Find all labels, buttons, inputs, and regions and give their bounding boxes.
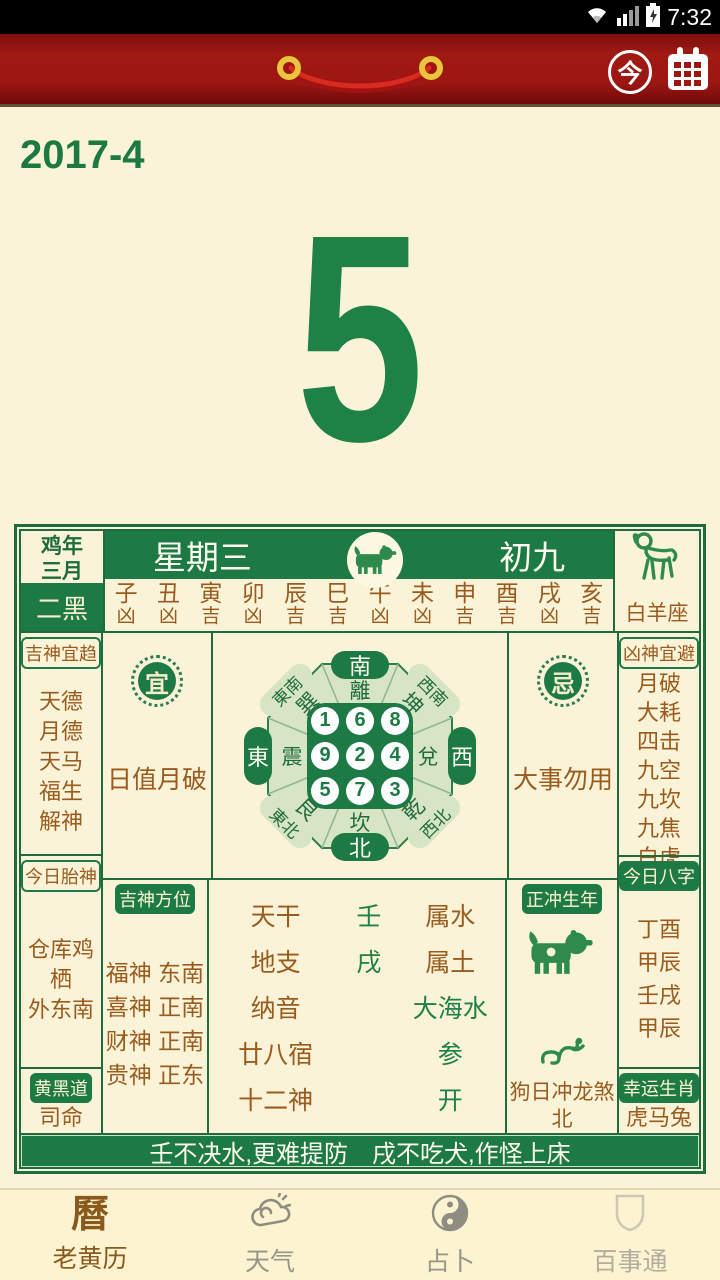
suitable-seal-icon: 宜 xyxy=(131,655,183,707)
branch-name: 辰 xyxy=(274,581,316,605)
weekday-label: 星期三 xyxy=(153,531,252,579)
lucky-zodiac-cell: 幸运生肖 虎马兔 xyxy=(619,1067,699,1133)
lunar-day-label: 初九 xyxy=(499,531,565,579)
lucky-directions-list: 福神 东南 喜神 正南 财神 正南 贵神 正东 xyxy=(106,914,204,1133)
nav-item-almanac[interactable]: 曆 老黄历 xyxy=(0,1190,180,1280)
branch-name: 寅 xyxy=(190,581,232,605)
fetal-god-cell: 今日胎神 仓库鸡栖 外东南 xyxy=(21,854,101,1067)
direction-north: 北 xyxy=(331,833,389,861)
bad-gods-cell: 凶神宜避 月破 大耗 四击 九空 九坎 九焦 白虎 xyxy=(619,633,699,855)
nav-label-divination: 占卜 xyxy=(425,1242,475,1278)
lucky-directions-badge: 吉神方位 xyxy=(115,884,195,914)
gz-attr: 属土 xyxy=(395,943,505,979)
gz-value: 戌 xyxy=(342,943,395,979)
branch-name: 戌 xyxy=(528,581,570,605)
good-gods-list: 天德 月德 天马 福生 解神 xyxy=(39,669,83,854)
gz-label: 廿八宿 xyxy=(209,1035,342,1071)
direction-east: 東 xyxy=(244,727,272,785)
flying-star: 二黑 xyxy=(21,583,103,631)
calendar-button[interactable] xyxy=(666,46,710,97)
star-number: 9 xyxy=(311,742,339,770)
lucky-zodiac-badge: 幸运生肖 xyxy=(619,1073,699,1103)
app-header: 今 xyxy=(0,34,720,107)
zodiac-sign-cell: 白羊座 xyxy=(613,531,699,631)
lucky-zodiac-text: 虎马兔 xyxy=(626,1103,692,1133)
nine-palace-compass: 離 坎 震 兌 巽 坤 艮 乾 1 6 8 9 2 xyxy=(245,653,475,859)
hourly-luck-row: 子凶 丑凶 寅吉 卯凶 辰吉 巳吉 午凶 未凶 申吉 酉吉 戌凶 亥吉 xyxy=(105,579,613,631)
rope-handle-icon xyxy=(275,56,445,103)
nav-item-weather[interactable]: 天气 xyxy=(180,1190,360,1280)
star-number: 4 xyxy=(381,742,409,770)
year-month-label: 2017-4 xyxy=(20,133,720,178)
branch-name: 未 xyxy=(401,581,443,605)
branch-name: 巳 xyxy=(317,581,359,605)
suitable-cell: 宜 日值月破 xyxy=(103,633,213,878)
gz-label: 地支 xyxy=(209,943,342,979)
trigram-dui: 兌 xyxy=(418,741,439,771)
fetal-god-badge: 今日胎神 xyxy=(21,860,101,892)
gz-label: 十二神 xyxy=(209,1081,342,1117)
yinyang-icon xyxy=(430,1193,470,1238)
daily-saying-bar: 壬不决水,更难提防 戌不吃犬,作怪上床 xyxy=(21,1133,699,1167)
branch-luck: 凶 xyxy=(359,605,401,629)
clash-badge: 正冲生年 xyxy=(522,884,602,914)
branch-name: 亥 xyxy=(571,581,613,605)
suitable-seal-char: 宜 xyxy=(138,662,176,700)
fetal-god-text: 仓库鸡栖 外东南 xyxy=(21,892,101,1067)
gz-label: 天干 xyxy=(209,897,342,933)
gz-attr: 参 xyxy=(395,1035,505,1071)
branch-luck: 吉 xyxy=(274,605,316,629)
shield-icon xyxy=(610,1193,650,1238)
status-time: 7:32 xyxy=(667,4,712,31)
star-number: 8 xyxy=(381,707,409,735)
today-button-label: 今 xyxy=(617,54,642,90)
ganzhi-table: 天干壬属水 地支戌属土 纳音大海水 廿八宿参 十二神开 xyxy=(209,880,505,1133)
today-button[interactable]: 今 xyxy=(608,50,652,94)
bazi-cell: 今日八字 丁酉 甲辰 壬戌 甲辰 xyxy=(619,855,699,1067)
branch-luck: 吉 xyxy=(486,605,528,629)
almanac-card[interactable]: 鸡年 三月 二黑 星期三 xyxy=(14,524,706,1174)
branch-luck: 吉 xyxy=(190,605,232,629)
branch-luck: 吉 xyxy=(444,605,486,629)
branch-luck: 吉 xyxy=(317,605,359,629)
bad-gods-badge: 凶神宜避 xyxy=(619,637,699,669)
lunar-year: 鸡年 xyxy=(21,534,103,559)
bottom-nav: 曆 老黄历 天气 占卜 xyxy=(0,1188,720,1280)
nav-label-almanac: 老黄历 xyxy=(52,1239,127,1275)
star-number: 3 xyxy=(381,777,409,805)
branch-luck: 吉 xyxy=(571,605,613,629)
clash-text: 狗日冲龙煞 北 xyxy=(510,1079,615,1133)
signal-icon xyxy=(617,4,639,31)
branch-name: 酉 xyxy=(486,581,528,605)
nav-item-encyclopedia[interactable]: 百事通 xyxy=(540,1190,720,1280)
good-gods-cell: 吉神宜趋 天德 月德 天马 福生 解神 xyxy=(21,633,101,854)
branch-luck: 凶 xyxy=(232,605,274,629)
branch-name: 子 xyxy=(105,581,147,605)
battery-icon xyxy=(646,3,660,32)
bazi-badge: 今日八字 xyxy=(619,861,699,891)
zodiac-sign-label: 白羊座 xyxy=(626,597,689,627)
yellow-black-path-cell: 黄黑道 司命 xyxy=(21,1067,101,1133)
good-gods-badge: 吉神宜趋 xyxy=(21,637,101,669)
avoid-seal-char: 忌 xyxy=(544,662,582,700)
clash-cell: 正冲生年 xyxy=(505,880,617,1133)
direction-west: 西 xyxy=(448,727,476,785)
gz-attr: 大海水 xyxy=(395,989,505,1025)
papercut-dog-icon xyxy=(529,928,595,981)
direction-south: 南 xyxy=(331,651,389,679)
compass-cell: 離 坎 震 兌 巽 坤 艮 乾 1 6 8 9 2 xyxy=(213,633,507,878)
trigram-zhen: 震 xyxy=(282,741,303,771)
star-number: 2 xyxy=(346,742,374,770)
star-number: 1 xyxy=(311,707,339,735)
star-number: 7 xyxy=(346,777,374,805)
week-bar: 星期三 xyxy=(105,531,613,579)
nav-item-divination[interactable]: 占卜 xyxy=(360,1190,540,1280)
suitable-text: 日值月破 xyxy=(107,707,207,878)
gz-label: 纳音 xyxy=(209,989,342,1025)
avoid-cell: 忌 大事勿用 xyxy=(507,633,617,878)
branch-name: 卯 xyxy=(232,581,274,605)
status-bar: 7:32 xyxy=(0,0,720,34)
avoid-seal-icon: 忌 xyxy=(537,655,589,707)
papercut-dragon-icon xyxy=(539,1034,585,1075)
flying-star-grid: 1 6 8 9 2 4 5 7 3 xyxy=(311,707,409,805)
gz-value: 壬 xyxy=(342,897,395,933)
star-number: 5 xyxy=(311,777,339,805)
branch-luck: 凶 xyxy=(147,605,189,629)
gz-attr: 属水 xyxy=(395,897,505,933)
branch-name: 丑 xyxy=(147,581,189,605)
lunar-year-cell: 鸡年 三月 二黑 xyxy=(21,531,105,631)
nav-label-weather: 天气 xyxy=(245,1242,295,1278)
branch-luck: 凶 xyxy=(528,605,570,629)
branch-luck: 凶 xyxy=(105,605,147,629)
branch-luck: 凶 xyxy=(401,605,443,629)
nav-label-encyclopedia: 百事通 xyxy=(592,1242,667,1278)
lucky-directions-cell: 吉神方位 福神 东南 喜神 正南 财神 正南 贵神 正东 xyxy=(103,880,209,1133)
star-number: 6 xyxy=(346,707,374,735)
gz-attr: 开 xyxy=(395,1081,505,1117)
yellow-black-path-value: 司命 xyxy=(39,1103,83,1133)
lunar-month: 三月 xyxy=(21,559,103,584)
bazi-text: 丁酉 甲辰 壬戌 甲辰 xyxy=(637,891,681,1067)
yellow-black-path-badge: 黄黑道 xyxy=(30,1073,92,1103)
avoid-text: 大事勿用 xyxy=(513,707,613,878)
aries-ram-icon xyxy=(628,528,686,595)
weather-icon xyxy=(249,1193,291,1238)
branch-name: 申 xyxy=(444,581,486,605)
almanac-icon: 曆 xyxy=(71,1195,109,1235)
wifi-icon xyxy=(584,4,610,31)
day-number[interactable]: 5 xyxy=(79,178,641,508)
bad-gods-list: 月破 大耗 四击 九空 九坎 九焦 白虎 xyxy=(637,669,681,872)
daily-saying-text: 壬不决水,更难提防 戌不吃犬,作怪上床 xyxy=(149,1134,570,1169)
